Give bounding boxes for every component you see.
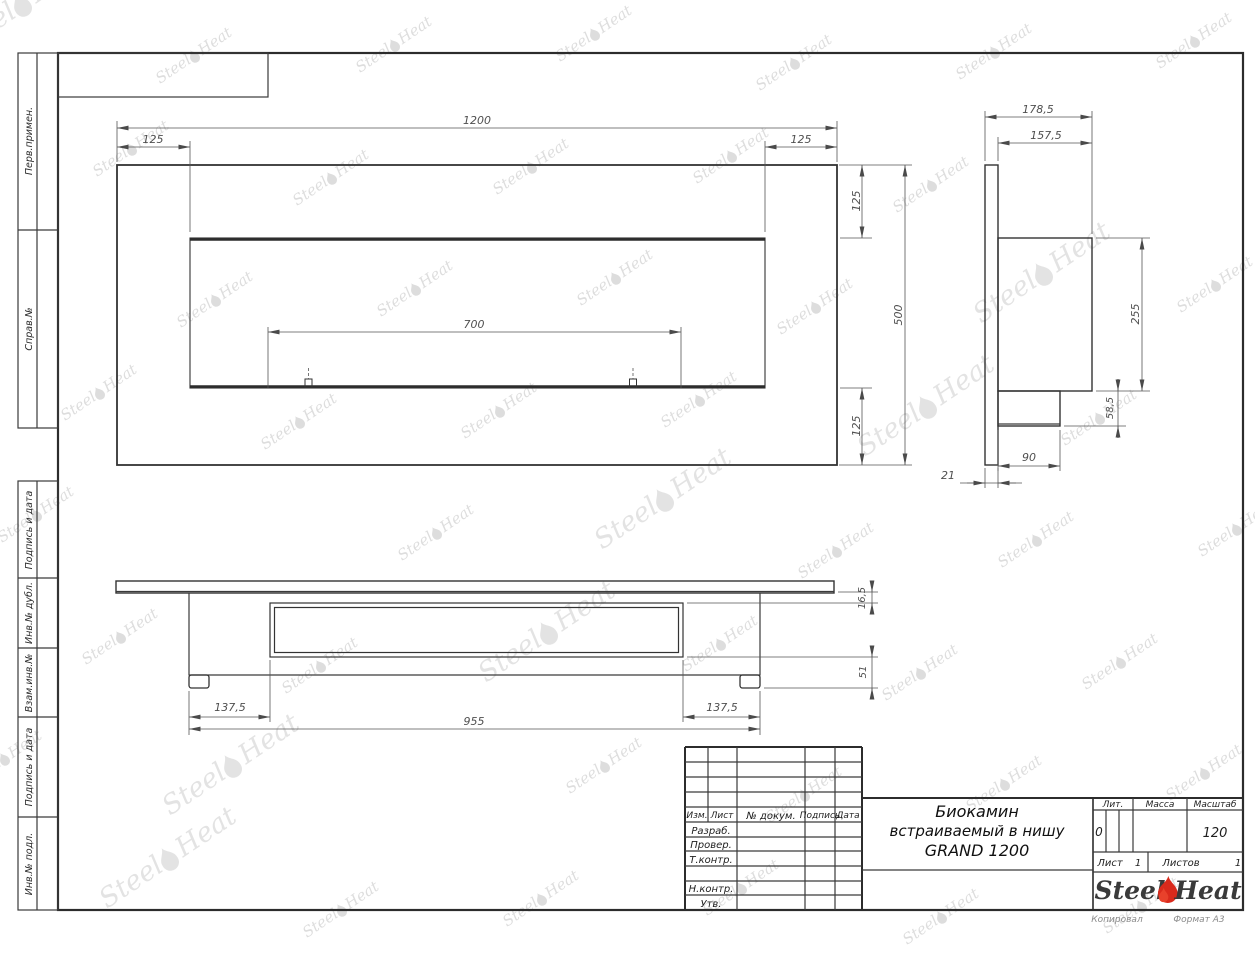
watermark: SteelHeat (94, 801, 243, 915)
watermark: SteelHeat (899, 884, 983, 949)
svg-text:Steel: Steel (552, 29, 594, 66)
svg-text:Heat: Heat (1194, 8, 1236, 45)
row-utv: Утв. (701, 899, 722, 910)
svg-text:Steel: Steel (89, 144, 131, 181)
svg-text:Steel: Steel (889, 180, 931, 217)
watermark: SteelHeat (78, 604, 162, 669)
watermark: SteelHeat (152, 23, 236, 88)
svg-text:Steel: Steel (489, 162, 531, 199)
stamp-perv-primen: Перв.примен. (24, 107, 35, 175)
svg-text:Steel: Steel (373, 284, 415, 321)
svg-text:90: 90 (1022, 451, 1036, 464)
svg-text:500: 500 (892, 305, 905, 326)
watermark: SteelHeat (373, 256, 457, 321)
svg-text:Steel: Steel (562, 761, 604, 798)
row-razrab: Разраб. (691, 825, 730, 837)
svg-text:Steel: Steel (173, 295, 215, 332)
watermark: SteelHeat (657, 367, 741, 432)
svg-text:Heat: Heat (836, 518, 878, 555)
scale-value: 120 (1203, 826, 1228, 841)
svg-text:Heat: Heat (815, 274, 857, 311)
svg-text:Steel: Steel (968, 265, 1043, 330)
logo-heat-text: Heat (1173, 876, 1242, 905)
svg-text:Heat: Heat (36, 482, 78, 519)
doc-title-line1: Биокамин (935, 802, 1019, 821)
svg-text:Steel: Steel (794, 546, 836, 583)
svg-text:Steel: Steel (689, 151, 731, 188)
stamp-podpis-data-1: Подпись и дата (24, 490, 35, 569)
svg-text:Heat: Heat (215, 267, 257, 304)
watermark: SteelHeat (689, 123, 773, 188)
svg-text:Heat: Heat (1204, 740, 1246, 777)
burner-mark-left (305, 368, 312, 388)
watermark: SteelHeat (0, 726, 46, 791)
svg-text:Heat: Heat (415, 256, 457, 293)
watermark: SteelHeat (278, 633, 362, 698)
svg-text:Heat: Heat (22, 0, 95, 10)
svg-text:Heat: Heat (699, 367, 741, 404)
watermark: SteelHeat (678, 611, 762, 676)
svg-text:Steel: Steel (1078, 657, 1120, 694)
svg-text:Steel: Steel (499, 894, 541, 931)
svg-text:Steel: Steel (878, 668, 920, 705)
svg-text:Steel: Steel (257, 417, 299, 454)
svg-text:Steel: Steel (152, 51, 194, 88)
watermark: SteelHeat (794, 518, 878, 583)
svg-text:700: 700 (464, 318, 485, 331)
svg-text:Steel: Steel (352, 40, 394, 77)
watermark: SteelHeat (752, 30, 836, 95)
watermark: SteelHeat (0, 0, 95, 61)
watermark: SteelHeat (589, 442, 738, 556)
svg-text:255: 255 (1129, 304, 1142, 325)
svg-text:Steel: Steel (994, 535, 1036, 572)
watermark: SteelHeat (1162, 740, 1246, 805)
stamp-sprav: Справ.№ (24, 307, 35, 350)
svg-text:Steel: Steel (752, 58, 794, 95)
svg-text:Steel: Steel (278, 661, 320, 698)
svg-text:Steel: Steel (773, 302, 815, 339)
listov-label: Листов (1161, 858, 1199, 869)
svg-text:Steel: Steel (457, 406, 499, 443)
svg-text:16,5: 16,5 (857, 587, 868, 609)
watermark: SteelHeat (1078, 629, 1162, 694)
svg-text:Steel: Steel (1173, 280, 1215, 317)
svg-text:Heat: Heat (941, 884, 983, 921)
svg-text:137,5: 137,5 (706, 701, 738, 714)
svg-text:Steel: Steel (473, 624, 548, 689)
row-nkontr: Н.контр. (689, 884, 734, 895)
svg-text:Heat: Heat (720, 611, 762, 648)
stamp-inv-podl: Инв.№ подл. (24, 833, 35, 896)
format-label: Формат А3 (1173, 915, 1225, 925)
dim-side-lower-depth: 90 (998, 430, 1060, 471)
stamp-inv-dubl: Инв.№ дубл. (24, 582, 35, 644)
watermark: SteelHeat (0, 482, 78, 547)
svg-text:Steel: Steel (394, 528, 436, 565)
dim-side-box-depth: 157,5 (998, 129, 1092, 161)
svg-text:Heat: Heat (99, 360, 141, 397)
svg-text:Heat: Heat (615, 245, 657, 282)
watermark: SteelHeat (173, 267, 257, 332)
svg-text:Heat: Heat (548, 575, 621, 639)
dim-front-right-offset: 125 (765, 133, 837, 232)
svg-text:Steel: Steel (1057, 413, 1099, 450)
svg-text:Heat: Heat (604, 733, 646, 770)
svg-text:Steel: Steel (1194, 524, 1236, 561)
row-prover: Провер. (690, 840, 732, 851)
steelheat-logo: Steel Heat (1095, 876, 1243, 905)
watermark-layer: SteelHeatSteelHeatSteelHeatSteelHeatStee… (0, 0, 1255, 948)
lit-value: 0 (1095, 825, 1103, 839)
svg-text:Heat: Heat (804, 762, 846, 799)
list-label: Лист (1096, 858, 1124, 869)
svg-text:1200: 1200 (463, 114, 491, 127)
watermark: SteelHeat (394, 500, 478, 565)
dim-bottom-flange: 16,5 (687, 582, 878, 614)
mass-label: Масса (1146, 800, 1175, 810)
svg-text:Heat: Heat (120, 604, 162, 641)
stamp-podpis-data-2: Подпись и дата (24, 727, 35, 806)
list-value: 1 (1135, 858, 1141, 869)
watermark: SteelHeat (878, 640, 962, 705)
svg-text:51: 51 (858, 666, 869, 679)
svg-text:Heat: Heat (1120, 629, 1162, 666)
lit-label: Лит. (1102, 800, 1124, 810)
dim-bottom-left-offset: 137,5 (189, 660, 270, 735)
svg-text:Steel: Steel (94, 850, 169, 915)
row-tkontr: Т.контр. (689, 855, 732, 866)
side-view: 178,5 157,5 255 58,5 90 (941, 103, 1150, 488)
left-column-stamps: Перв.примен. Справ.№ Подпись и дата Инв.… (18, 53, 58, 910)
dim-bottom-right-offset: 137,5 (683, 660, 760, 735)
dim-side-box-height: 255 (1096, 238, 1150, 391)
svg-text:Heat: Heat (1036, 507, 1078, 544)
copied-label: Копировал (1091, 915, 1143, 925)
svg-text:Steel: Steel (289, 173, 331, 210)
watermark: SteelHeat (552, 1, 636, 66)
svg-text:157,5: 157,5 (1030, 129, 1062, 142)
svg-text:Heat: Heat (1043, 216, 1116, 280)
svg-text:Heat: Heat (927, 349, 1000, 413)
svg-text:Heat: Heat (931, 152, 973, 189)
svg-text:21: 21 (941, 469, 955, 482)
svg-text:Steel: Steel (589, 491, 664, 556)
svg-text:125: 125 (791, 133, 812, 146)
svg-text:Steel: Steel (573, 273, 615, 310)
col-sign: Подпись (800, 811, 840, 821)
watermark: SteelHeat (1152, 8, 1236, 73)
logo-steel-text: Steel (1095, 876, 1166, 905)
watermark: SteelHeat (573, 245, 657, 310)
svg-text:125: 125 (850, 416, 863, 437)
right-foot (740, 675, 760, 688)
svg-text:Heat: Heat (331, 145, 373, 182)
watermark: SteelHeat (1057, 385, 1141, 450)
svg-text:58,5: 58,5 (1105, 397, 1116, 419)
svg-text:955: 955 (464, 715, 485, 728)
svg-text:Heat: Heat (794, 30, 836, 67)
watermark: SteelHeat (289, 145, 373, 210)
watermark: SteelHeat (952, 19, 1036, 84)
svg-text:125: 125 (143, 133, 164, 146)
svg-text:Heat: Heat (436, 500, 478, 537)
svg-text:137,5: 137,5 (214, 701, 246, 714)
doc-title-line3: GRAND 1200 (925, 841, 1030, 860)
svg-text:Heat: Heat (1215, 252, 1255, 289)
watermark: SteelHeat (57, 360, 141, 425)
svg-text:Heat: Heat (541, 866, 583, 903)
svg-text:Heat: Heat (341, 877, 383, 914)
watermark: SteelHeat (499, 866, 583, 931)
col-list: Лист (710, 811, 735, 821)
sheet-frame (58, 53, 1243, 910)
svg-text:Heat: Heat (994, 19, 1036, 56)
watermark: SteelHeat (994, 507, 1078, 572)
watermark: SteelHeat (852, 349, 1001, 463)
watermark: SteelHeat (562, 733, 646, 798)
drawing-sheet: SteelHeatSteelHeatSteelHeatSteelHeatStee… (0, 0, 1255, 970)
watermark: SteelHeat (157, 708, 306, 822)
left-foot (189, 675, 209, 688)
watermark: SteelHeat (1194, 496, 1255, 561)
watermark: SteelHeat (968, 216, 1117, 330)
svg-text:Heat: Heat (594, 1, 636, 38)
watermark: SteelHeat (489, 134, 573, 199)
col-izm: Изм. (686, 811, 707, 821)
col-date: Дата (835, 811, 859, 821)
stamp-vzam-inv: Взам.инв.№ (24, 654, 35, 713)
watermark: SteelHeat (773, 274, 857, 339)
svg-text:125: 125 (850, 191, 863, 212)
title-block: Изм. Лист № докум. Подпись Дата Разраб. … (685, 747, 1243, 910)
listov-value: 1 (1235, 858, 1241, 869)
svg-text:Heat: Heat (299, 389, 341, 426)
watermark: SteelHeat (889, 152, 973, 217)
doc-title-line2: встраиваемый в нишу (890, 822, 1066, 840)
svg-text:Heat: Heat (1004, 751, 1046, 788)
col-doc: № докум. (745, 811, 795, 822)
svg-text:Heat: Heat (394, 12, 436, 49)
burner-mark-right (630, 368, 637, 388)
watermark: SteelHeat (257, 389, 341, 454)
dim-side-depth: 178,5 (985, 103, 1092, 234)
dim-burner-width: 700 (268, 318, 681, 388)
svg-text:Steel: Steel (78, 632, 120, 669)
watermark: SteelHeat (89, 116, 173, 181)
drawing-canvas: SteelHeatSteelHeatSteelHeatSteelHeatStee… (0, 0, 1255, 970)
svg-text:178,5: 178,5 (1022, 103, 1054, 116)
svg-text:Steel: Steel (57, 388, 99, 425)
svg-text:Heat: Heat (320, 633, 362, 670)
svg-text:Heat: Heat (920, 640, 962, 677)
svg-text:Heat: Heat (664, 442, 737, 506)
scale-label: Масштаб (1194, 800, 1237, 810)
svg-text:Heat: Heat (499, 378, 541, 415)
svg-text:Heat: Heat (741, 855, 783, 892)
svg-text:Steel: Steel (657, 395, 699, 432)
dim-side-plate-thickness: 21 (941, 468, 1022, 488)
watermark: SteelHeat (352, 12, 436, 77)
footer-labels: Копировал Формат А3 (1091, 915, 1225, 925)
svg-text:Steel: Steel (899, 912, 941, 949)
